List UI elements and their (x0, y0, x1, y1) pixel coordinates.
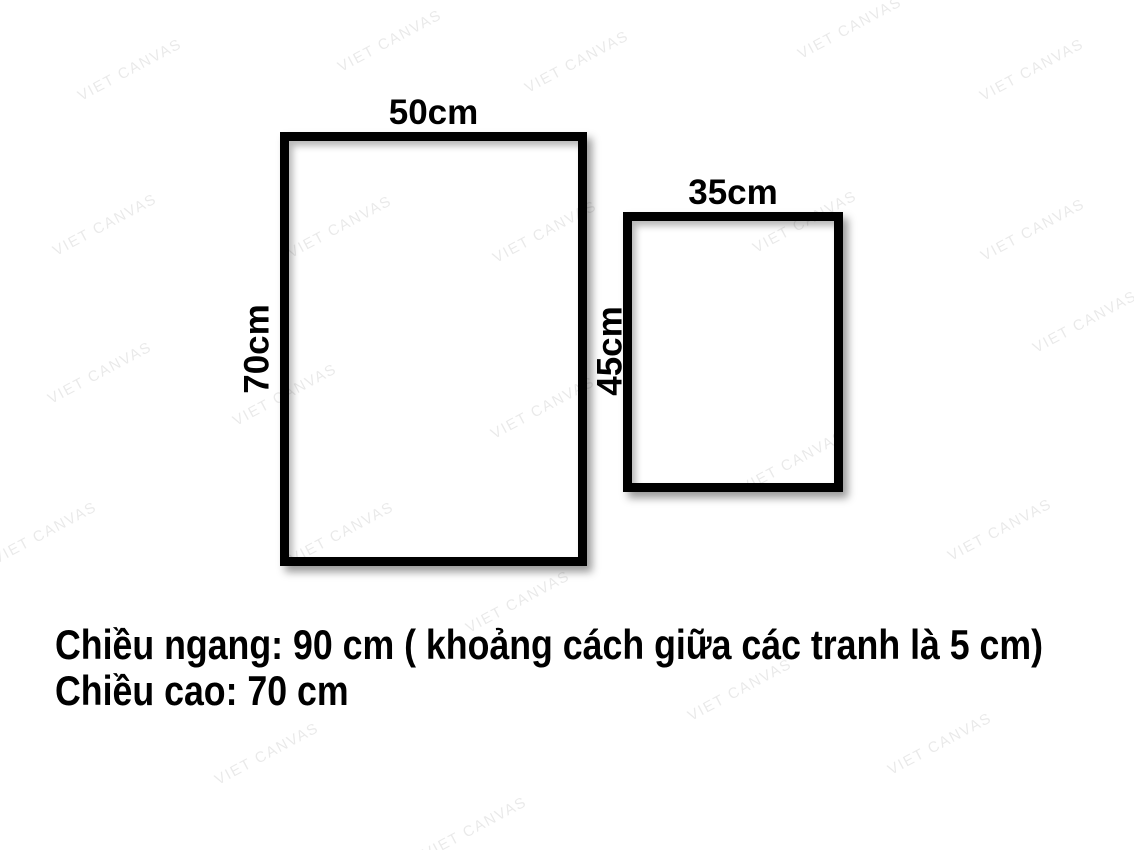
frame-large-rectangle (280, 132, 587, 566)
frame-small-height-label: 45cm (593, 306, 628, 396)
watermark-text: VIET CANVAS (212, 719, 322, 788)
watermark-text: VIET CANVAS (1030, 287, 1134, 356)
watermark-text: VIET CANVAS (50, 190, 160, 259)
caption-line-vertical: Chiều cao: 70 cm (55, 668, 1043, 714)
watermark-text: VIET CANVAS (75, 35, 185, 104)
frame-small-width-label: 35cm (623, 175, 843, 210)
frame-small-rectangle (623, 212, 843, 492)
frame-large-width-label: 50cm (280, 95, 587, 130)
caption: Chiều ngang: 90 cm ( khoảng cách giữa cá… (55, 622, 1043, 714)
dimension-diagram: 50cm 70cm 35cm 45cm Chiều ngang: 90 cm (… (0, 0, 1134, 850)
watermark-text: VIET CANVAS (885, 709, 995, 778)
watermark-text: VIET CANVAS (335, 6, 445, 75)
watermark-text: VIET CANVAS (945, 495, 1055, 564)
watermark-text: VIET CANVAS (420, 793, 530, 850)
watermark-text: VIET CANVAS (522, 27, 632, 96)
frame-large-height-label: 70cm (240, 304, 275, 394)
watermark-text: VIET CANVAS (45, 338, 155, 407)
watermark-text: VIET CANVAS (795, 0, 905, 63)
watermark-text: VIET CANVAS (978, 195, 1088, 264)
caption-line-horizontal: Chiều ngang: 90 cm ( khoảng cách giữa cá… (55, 622, 1043, 668)
watermark-text: VIET CANVAS (977, 35, 1087, 104)
watermark-text: VIET CANVAS (0, 498, 100, 567)
